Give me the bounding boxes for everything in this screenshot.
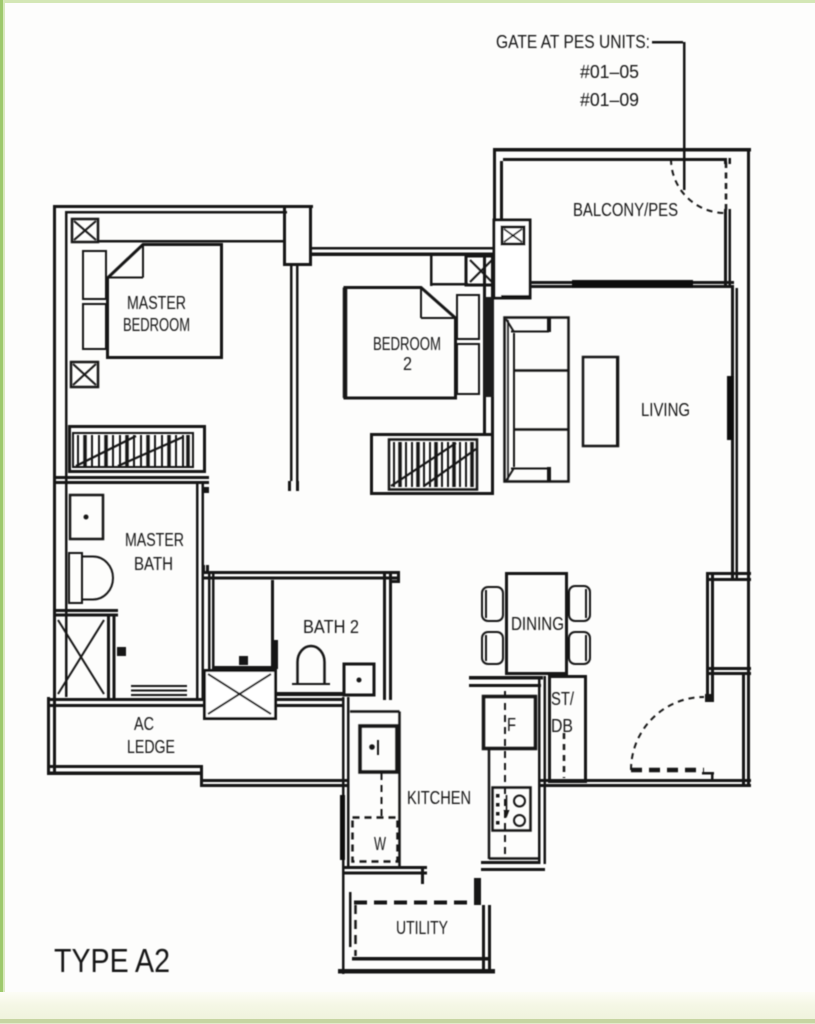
svg-text:F: F <box>507 715 516 735</box>
svg-text:#01–09: #01–09 <box>580 89 639 110</box>
svg-text:KITCHEN: KITCHEN <box>407 788 471 808</box>
svg-text:ST/: ST/ <box>551 689 574 709</box>
svg-text:DB: DB <box>551 716 573 736</box>
svg-text:UTILITY: UTILITY <box>396 918 448 938</box>
svg-text:BATH 2: BATH 2 <box>303 617 359 637</box>
svg-text:2: 2 <box>403 354 412 374</box>
svg-text:BEDROOM: BEDROOM <box>123 315 190 335</box>
svg-text:MASTER: MASTER <box>125 530 184 550</box>
svg-text:W: W <box>374 834 386 854</box>
svg-text:LEDGE: LEDGE <box>127 737 175 757</box>
svg-text:BEDROOM: BEDROOM <box>373 334 441 354</box>
svg-text:#01–05: #01–05 <box>580 61 639 82</box>
svg-text:LIVING: LIVING <box>641 400 690 420</box>
svg-text:AC: AC <box>134 714 154 734</box>
svg-text:BATH: BATH <box>134 554 173 574</box>
svg-text:BALCONY/PES: BALCONY/PES <box>573 200 678 220</box>
svg-text:TYPE A2: TYPE A2 <box>54 942 170 979</box>
svg-text:GATE AT PES UNITS:: GATE AT PES UNITS: <box>496 31 650 52</box>
svg-text:MASTER: MASTER <box>127 293 186 313</box>
svg-text:DINING: DINING <box>511 614 564 634</box>
